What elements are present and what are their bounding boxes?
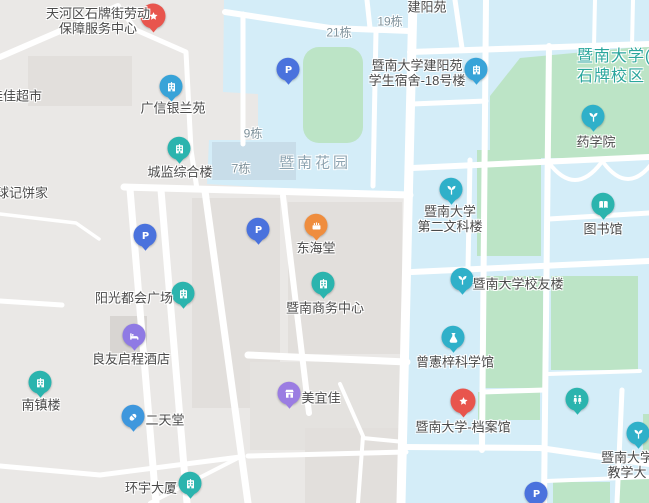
poi-label-jianyangyuan-dorm-18[interactable]: 暨南大学建阳苑 学生宿舍-18号楼	[369, 58, 466, 88]
green-area	[485, 276, 543, 388]
green-area	[551, 276, 638, 370]
poi-liangyou-qicheng-hotel[interactable]	[123, 324, 146, 347]
poi-label-guangxin-yinlanyuan[interactable]: 广信银兰苑	[140, 101, 205, 116]
road	[367, 0, 370, 28]
poi-pharmacy-school[interactable]	[582, 105, 605, 128]
green-area	[616, 479, 649, 503]
building-icon	[183, 476, 197, 490]
sprout-icon	[631, 426, 645, 440]
poi-restroom[interactable]	[566, 388, 589, 411]
poi-label-meiyijia-store[interactable]: 美宜佳	[301, 391, 340, 406]
poi-jianyangyuan-dorm-18[interactable]	[465, 58, 488, 81]
parking-icon: P	[138, 228, 152, 242]
sprout-icon	[586, 109, 600, 123]
poi-label-jinan-archives[interactable]: 暨南大学-档案馆	[415, 420, 510, 435]
bed-icon	[127, 328, 141, 342]
poi-label-alumni-building[interactable]: 暨南大学校友楼	[472, 277, 563, 292]
poi-huanyu-tower[interactable]	[179, 472, 202, 495]
poi-zengxianzi-science-hall[interactable]	[442, 326, 465, 349]
poi-donghaitang-bakery[interactable]	[305, 214, 328, 237]
poi-label-zengxianzi-science-hall[interactable]: 曾憲梓科学馆	[416, 355, 494, 370]
poi-label-huanyu-tower[interactable]: 环宇大厦	[125, 481, 177, 496]
area-label-jinan-university-campus: 暨南大学( 石牌校区	[577, 47, 649, 87]
poi-jinan-archives[interactable]	[451, 389, 476, 414]
area-label-jinan-garden: 暨南花园	[279, 156, 351, 171]
building-icon	[316, 276, 330, 290]
parking-icon: P	[281, 62, 295, 76]
capsule-icon	[126, 409, 140, 423]
parking-pin[interactable]: P	[277, 58, 300, 81]
poi-alumni-building[interactable]	[451, 268, 474, 291]
cake-icon	[309, 218, 323, 232]
building-icon	[172, 141, 186, 155]
building-icon	[469, 62, 483, 76]
poi-label-pharmacy-school[interactable]: 药学院	[576, 135, 615, 150]
star-icon	[456, 394, 470, 408]
poi-label-second-liberal-arts-building[interactable]: 暨南大学 第二文科楼	[417, 204, 482, 234]
road	[482, 390, 545, 392]
poi-jinan-business-center[interactable]	[312, 272, 335, 295]
building-icon	[164, 79, 178, 93]
svg-text:P: P	[284, 65, 291, 76]
area-label-jiajia-supermarket: 佳佳超市	[0, 89, 42, 104]
road	[412, 101, 486, 104]
parking-icon: P	[529, 486, 543, 500]
poi-meiyijia-store[interactable]	[278, 382, 301, 405]
sprout-icon	[444, 182, 458, 196]
area-label-building-19: 19栋	[377, 15, 402, 30]
parking-icon: P	[251, 222, 265, 236]
svg-text:P: P	[254, 225, 261, 236]
poi-sunshine-metro-plaza[interactable]	[172, 282, 195, 305]
sports-field	[303, 47, 363, 143]
area-label-building-9: 9栋	[244, 127, 263, 142]
restroom-icon	[570, 392, 584, 406]
green-area	[553, 482, 610, 503]
svg-text:P: P	[141, 231, 148, 242]
area-label-qiuji-bakery: 球记饼家	[0, 186, 48, 201]
store-icon	[282, 386, 296, 400]
book-icon	[596, 197, 610, 211]
building-icon	[33, 375, 47, 389]
poi-guangxin-yinlanyuan[interactable]	[160, 75, 183, 98]
sprout-icon	[455, 272, 469, 286]
building-block	[28, 56, 132, 106]
poi-nanzhenlou[interactable]	[29, 371, 52, 394]
road	[373, 31, 376, 186]
road	[594, 0, 595, 46]
area-label-building-7: 7栋	[232, 162, 251, 177]
poi-label-labor-service-center[interactable]: 天河区石牌街劳动 保障服务中心	[46, 6, 150, 36]
parking-pin[interactable]: P	[247, 218, 270, 241]
green-area	[478, 392, 540, 420]
poi-teaching-building[interactable]	[627, 422, 649, 445]
parking-pin[interactable]: P	[134, 224, 157, 247]
poi-label-ertiantang-pharmacy[interactable]: 二天堂	[145, 413, 184, 428]
poi-label-library[interactable]: 图书馆	[583, 222, 622, 237]
area-label-building-21: 21栋	[326, 26, 351, 41]
building-icon	[176, 286, 190, 300]
poi-label-teaching-building[interactable]: 暨南大学 教学大	[601, 450, 649, 480]
parking-pin[interactable]: P	[525, 482, 548, 503]
poi-label-jinan-business-center[interactable]: 暨南商务中心	[286, 301, 364, 316]
poi-label-chengjian-complex[interactable]: 城监综合楼	[147, 165, 212, 180]
poi-ertiantang-pharmacy[interactable]	[122, 405, 145, 428]
map-canvas[interactable]: 佳佳超市球记饼家9栋7栋21栋19栋建阳苑暨南花园暨南大学( 石牌校区 天河区石…	[0, 0, 649, 503]
flask-icon	[446, 330, 460, 344]
poi-label-liangyou-qicheng-hotel[interactable]: 良友启程酒店	[92, 352, 170, 367]
poi-label-nanzhenlou[interactable]: 南镇楼	[21, 398, 60, 413]
poi-second-liberal-arts-building[interactable]	[440, 178, 463, 201]
poi-label-sunshine-metro-plaza[interactable]: 阳光都会广场	[95, 291, 173, 306]
poi-label-donghaitang-bakery[interactable]: 东海堂	[296, 241, 335, 256]
poi-library[interactable]	[592, 193, 615, 216]
road	[632, 0, 633, 45]
poi-chengjian-complex[interactable]	[168, 137, 191, 160]
area-label-jianyangyuan: 建阳苑	[407, 0, 446, 15]
svg-text:P: P	[532, 489, 539, 500]
